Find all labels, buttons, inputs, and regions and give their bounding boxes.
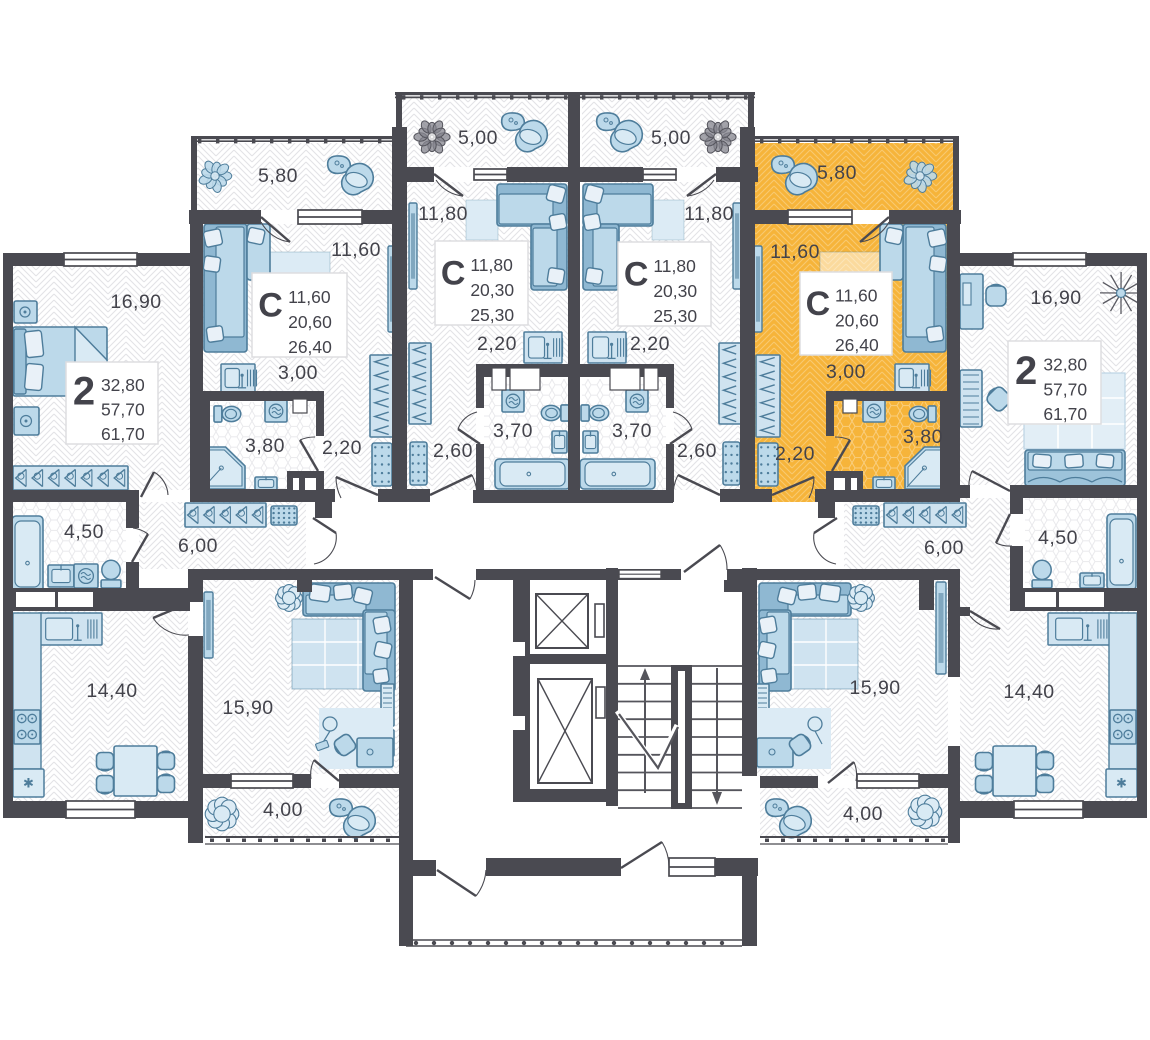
svg-text:57,70: 57,70 [101,400,145,420]
svg-text:3,80: 3,80 [245,435,285,457]
svg-text:14,40: 14,40 [1003,681,1054,703]
svg-text:20,60: 20,60 [288,312,332,332]
svg-text:2,20: 2,20 [630,333,670,355]
svg-text:26,40: 26,40 [288,337,332,357]
svg-text:2: 2 [73,370,95,414]
svg-text:6,00: 6,00 [924,537,964,559]
svg-text:4,00: 4,00 [843,803,883,825]
svg-text:4,50: 4,50 [64,521,104,543]
svg-text:C: C [258,287,283,325]
svg-text:11,60: 11,60 [835,285,878,305]
svg-text:15,90: 15,90 [849,677,900,699]
svg-text:14,40: 14,40 [86,680,137,702]
svg-text:2,20: 2,20 [322,437,362,459]
svg-text:2,60: 2,60 [677,440,717,462]
svg-text:20,60: 20,60 [835,310,879,330]
svg-text:11,60: 11,60 [288,287,331,307]
svg-text:11,80: 11,80 [653,256,696,276]
svg-text:15,90: 15,90 [222,697,273,719]
svg-text:3,00: 3,00 [278,362,318,384]
svg-text:4,50: 4,50 [1038,527,1078,549]
svg-text:3,70: 3,70 [612,420,652,442]
svg-text:32,80: 32,80 [101,375,145,395]
svg-text:11,80: 11,80 [418,203,468,225]
svg-text:11,80: 11,80 [470,255,513,275]
svg-text:5,80: 5,80 [817,162,857,184]
svg-text:61,70: 61,70 [1043,404,1087,424]
svg-text:✱: ✱ [23,776,34,791]
svg-text:5,80: 5,80 [258,165,298,187]
svg-text:16,90: 16,90 [110,291,161,313]
svg-text:✱: ✱ [1116,776,1127,791]
svg-text:20,30: 20,30 [470,280,514,300]
svg-text:61,70: 61,70 [101,424,145,444]
svg-text:11,60: 11,60 [770,241,820,263]
svg-text:32,80: 32,80 [1043,354,1087,374]
svg-text:C: C [806,285,831,323]
svg-text:16,90: 16,90 [1030,287,1081,309]
svg-text:3,00: 3,00 [826,361,866,383]
svg-text:26,40: 26,40 [835,335,879,355]
svg-text:5,00: 5,00 [651,127,691,149]
svg-text:C: C [441,255,466,293]
svg-text:25,30: 25,30 [470,305,514,325]
svg-text:2,20: 2,20 [775,443,815,465]
svg-text:C: C [624,256,649,294]
svg-text:2,60: 2,60 [433,440,473,462]
svg-text:6,00: 6,00 [178,535,218,557]
svg-text:11,60: 11,60 [331,239,381,261]
svg-text:57,70: 57,70 [1043,379,1087,399]
svg-text:25,30: 25,30 [653,306,697,326]
svg-text:3,80: 3,80 [903,426,943,448]
svg-text:4,00: 4,00 [263,799,303,821]
svg-text:3,70: 3,70 [493,420,533,442]
svg-text:5,00: 5,00 [458,127,498,149]
svg-text:2: 2 [1015,349,1037,393]
svg-text:2,20: 2,20 [477,333,517,355]
svg-text:11,80: 11,80 [684,203,734,225]
svg-text:20,30: 20,30 [653,281,697,301]
